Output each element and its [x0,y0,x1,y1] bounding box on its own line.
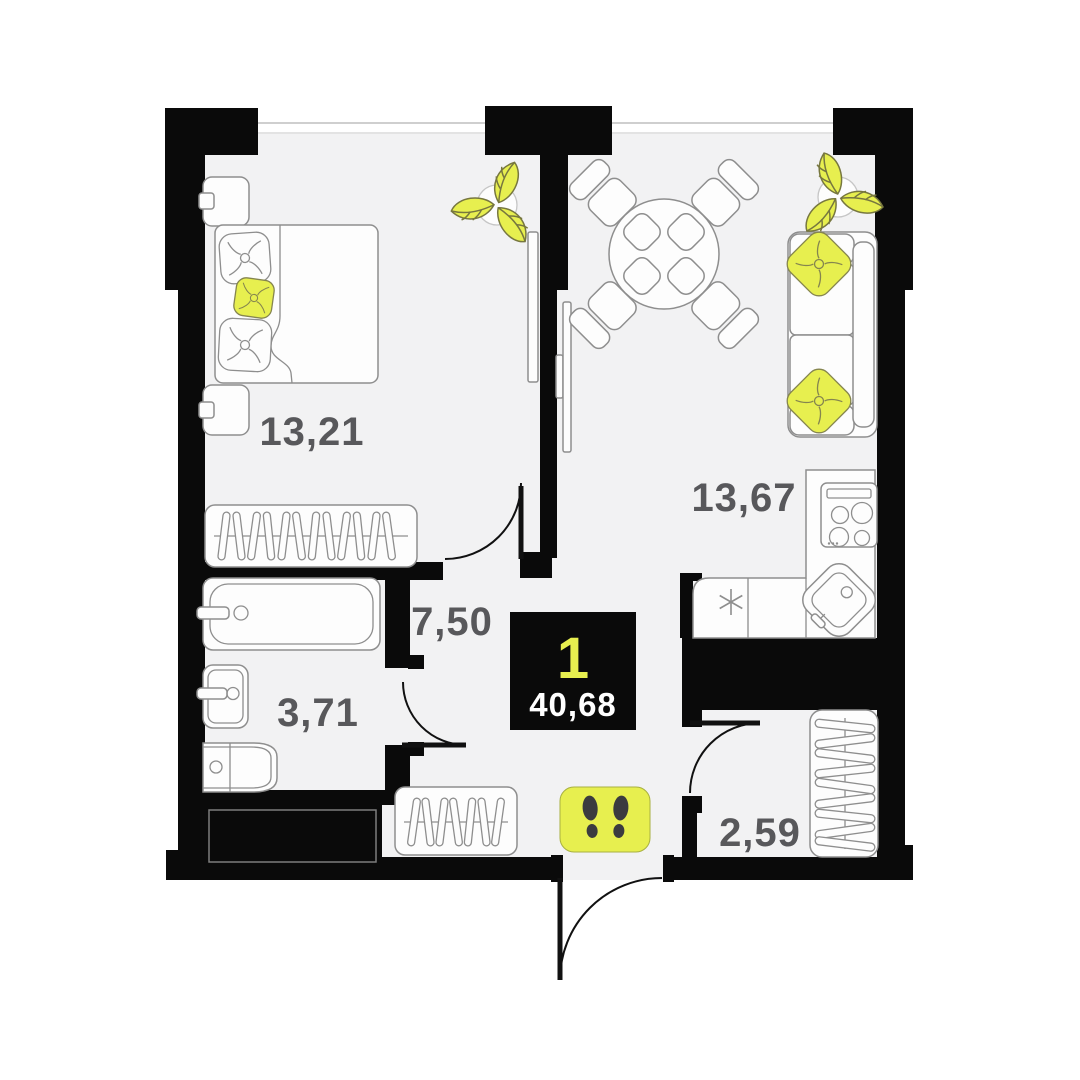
bathroom-area-label: 3,71 [277,691,359,735]
window-bedroom [258,98,485,134]
accent-pillow [233,277,276,320]
washing-machine-icon [203,743,277,792]
floor-plan: 13,21 [0,0,1080,1080]
entrance-door [560,878,662,980]
washbasin-icon [197,665,248,728]
unit-info-badge: 1 40,68 [510,612,636,730]
total-area: 40,68 [529,686,617,723]
wardrobe-icon [205,505,417,567]
bathtub-icon [197,578,380,650]
rooms-count: 1 [557,626,589,691]
stove-icon [821,483,877,547]
nightstand-icon [199,177,249,226]
nightstand-icon [199,385,249,435]
bed-pillow [218,318,273,373]
window-living [612,98,833,134]
living-area-label: 13,67 [691,476,796,520]
closet-wardrobe-icon [810,710,878,857]
double-bed-icon [215,225,378,383]
bedroom-area-label: 13,21 [259,410,364,454]
closet-area-label: 2,59 [719,811,801,855]
hallway-area-label: 7,50 [411,600,493,644]
ventilation-shaft [203,805,382,867]
bed-pillow [218,231,271,284]
sofa-icon [782,227,877,438]
floor-plan-page: 13,21 [0,0,1080,1080]
entrance-footprints-icon [560,787,650,852]
coat-rack-icon [395,787,517,855]
